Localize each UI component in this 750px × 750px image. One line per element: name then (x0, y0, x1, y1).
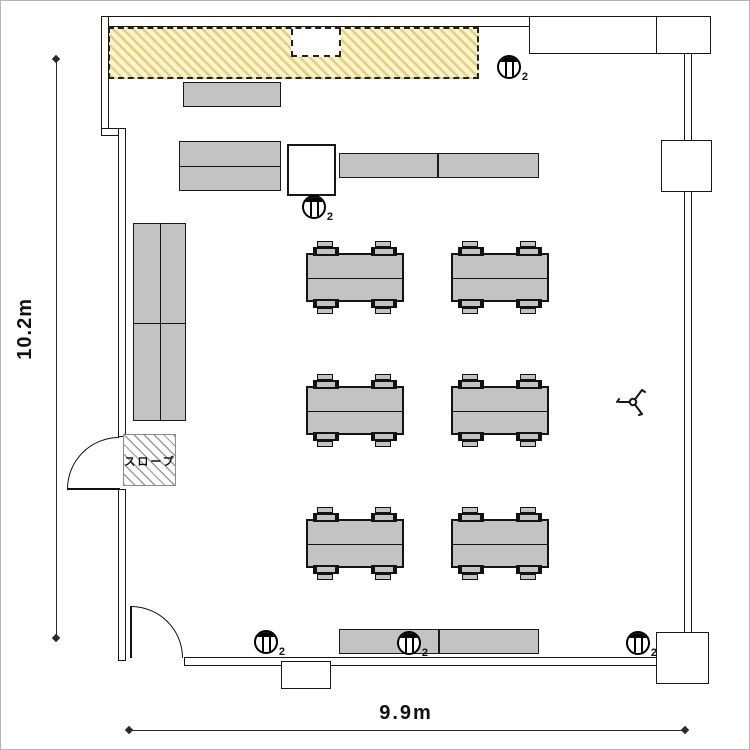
chair-seat (313, 247, 339, 256)
counter-bottom-b (439, 629, 539, 654)
chair-seat (371, 432, 397, 441)
dimension-tick (681, 726, 689, 734)
chair-seat (313, 565, 339, 574)
chair-back (375, 574, 391, 580)
outlet-disc (626, 631, 650, 655)
shelf-top (183, 82, 281, 107)
outlet-line (405, 633, 407, 653)
counter-divider (160, 223, 161, 421)
chair (516, 434, 542, 447)
chair-seat (371, 299, 397, 308)
chair-seat (458, 432, 484, 441)
chair-seat (371, 565, 397, 574)
outlet-line (262, 632, 264, 652)
door-swing-arc-left (67, 437, 119, 489)
outlet-line (310, 197, 312, 217)
chair-seat (371, 247, 397, 256)
outlet-cap (626, 631, 650, 638)
chair-back (375, 441, 391, 447)
column-bottom-left (281, 661, 331, 689)
column-right-middle (661, 140, 712, 192)
wall-top-right-recess (529, 16, 711, 54)
door-leaf-left (67, 488, 120, 490)
worktable-r1c1 (306, 253, 404, 302)
outlet-line (412, 633, 414, 653)
outlet-count-label: 2 (651, 647, 657, 659)
chair-seat (516, 513, 542, 522)
chair-back (462, 308, 478, 314)
chair (371, 507, 397, 520)
chair (516, 301, 542, 314)
chair-seat (313, 299, 339, 308)
chair-back (375, 308, 391, 314)
chair-back (462, 574, 478, 580)
outlet-line (512, 57, 514, 77)
chair (458, 301, 484, 314)
chair-seat (516, 299, 542, 308)
power-outlet-icon: 2 (302, 195, 326, 219)
chair-seat (516, 247, 542, 256)
chair (313, 434, 339, 447)
outlet-line (634, 633, 636, 653)
counter-row2-a (339, 153, 438, 178)
demo-desk (287, 144, 336, 196)
wall-right-lower (684, 191, 692, 633)
wall-top (101, 16, 531, 27)
width-dimension-label: 9.9m (341, 702, 471, 725)
outlet-count-label: 2 (522, 71, 528, 83)
chair (313, 567, 339, 580)
chair (313, 301, 339, 314)
worktable-r3c2 (451, 519, 549, 568)
power-outlet-icon: 2 (626, 631, 650, 655)
hatched-zone-notch (291, 29, 341, 57)
chair-back (520, 308, 536, 314)
chair (516, 374, 542, 387)
chair-seat (313, 513, 339, 522)
door-swing-arc-bottom-left (131, 606, 183, 658)
chair (371, 374, 397, 387)
chair (313, 507, 339, 520)
table-center-divider (452, 411, 548, 412)
ramp-label: スロープ (119, 453, 181, 469)
table-center-divider (307, 411, 403, 412)
outlet-line (269, 632, 271, 652)
chair-back (520, 574, 536, 580)
outlet-cap (254, 630, 278, 637)
outlet-line (505, 57, 507, 77)
outlet-count-label: 2 (422, 647, 428, 659)
outlet-cap (397, 631, 421, 638)
chair-seat (516, 565, 542, 574)
chair-back (317, 308, 333, 314)
outlet-line (641, 633, 643, 653)
outlet-cap (497, 55, 521, 62)
wall-right-upper (684, 53, 692, 141)
outlet-disc (254, 630, 278, 654)
floor-plan-canvas: スロープ 10.2m 9.9m 22222 (0, 0, 750, 750)
chair-back (317, 574, 333, 580)
chair-seat (458, 565, 484, 574)
chair (313, 241, 339, 254)
chair (516, 241, 542, 254)
chair (458, 374, 484, 387)
chair-seat (458, 380, 484, 389)
power-outlet-icon: 2 (497, 55, 521, 79)
outlet-disc (302, 195, 326, 219)
chair-back (520, 441, 536, 447)
table-center-divider (307, 278, 403, 279)
wall-left-middle (118, 128, 126, 437)
chair (458, 434, 484, 447)
chair-seat (458, 513, 484, 522)
chair-seat (516, 380, 542, 389)
shelf-row2-left (179, 141, 281, 191)
chair-seat (371, 513, 397, 522)
chair (458, 507, 484, 520)
dimension-tick (52, 55, 60, 63)
hatched-storage-zone (108, 27, 479, 79)
chair-back (462, 441, 478, 447)
chair (458, 567, 484, 580)
chair-seat (371, 380, 397, 389)
worktable-r2c1 (306, 386, 404, 435)
table-center-divider (307, 544, 403, 545)
counter-divider (179, 166, 281, 167)
cabinet-left (133, 223, 186, 421)
chair-seat (458, 299, 484, 308)
power-outlet-icon: 2 (397, 631, 421, 655)
table-center-divider (452, 278, 548, 279)
chair (458, 241, 484, 254)
wall-recess-divider (656, 17, 657, 53)
chair-seat (516, 432, 542, 441)
dimension-tick (125, 726, 133, 734)
height-dimension-label: 10.2m (14, 298, 37, 360)
outlet-cap (302, 195, 326, 202)
outlet-count-label: 2 (327, 211, 333, 223)
chair (371, 567, 397, 580)
wall-left-lower (118, 489, 126, 661)
chair-back (317, 441, 333, 447)
worktable-r2c2 (451, 386, 549, 435)
chair-seat (313, 432, 339, 441)
chair (371, 241, 397, 254)
chair (371, 301, 397, 314)
dimension-tick (52, 634, 60, 642)
chair (516, 507, 542, 520)
chair (313, 374, 339, 387)
fan-icon (615, 384, 651, 420)
height-dimension-line (56, 58, 57, 638)
power-outlet-icon: 2 (254, 630, 278, 654)
outlet-count-label: 2 (279, 646, 285, 658)
outlet-line (317, 197, 319, 217)
width-dimension-line (129, 730, 685, 731)
chair-seat (313, 380, 339, 389)
worktable-r1c2 (451, 253, 549, 302)
wall-bottom (184, 657, 657, 666)
chair (371, 434, 397, 447)
counter-row2-b (438, 153, 539, 178)
door-leaf-bottom-left (130, 606, 132, 658)
chair (516, 567, 542, 580)
outlet-disc (397, 631, 421, 655)
wall-left-upper (101, 16, 109, 136)
column-bottom-right (656, 632, 709, 684)
chair-seat (458, 247, 484, 256)
worktable-r3c1 (306, 519, 404, 568)
outlet-disc (497, 55, 521, 79)
table-center-divider (452, 544, 548, 545)
